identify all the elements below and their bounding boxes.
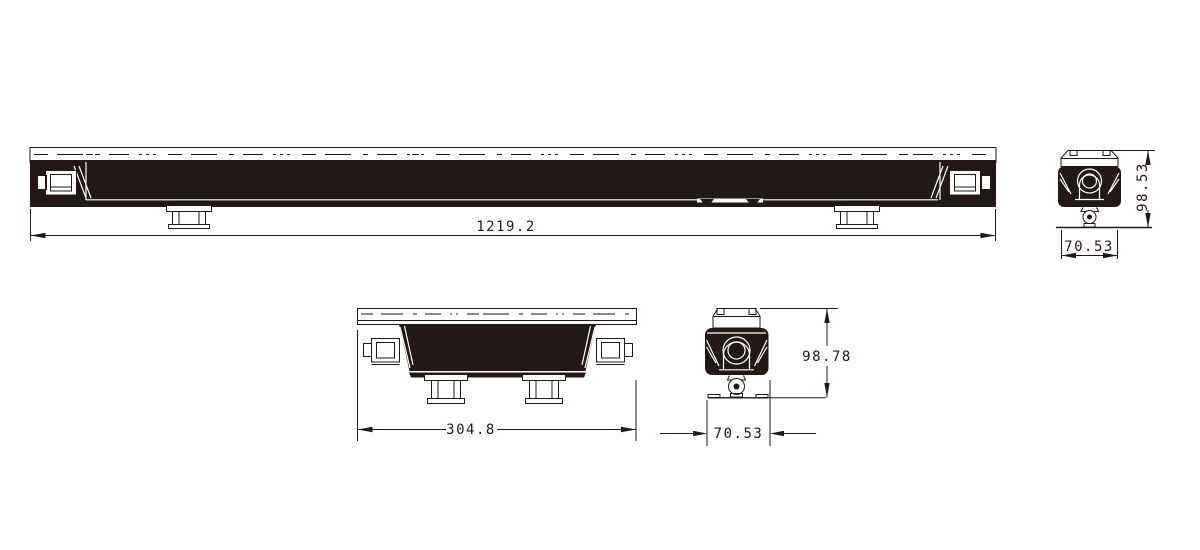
short-rail-cap-tabs (717, 309, 756, 315)
rail-cap-tabs (1070, 151, 1110, 156)
front-view-full-fixture (30, 148, 996, 229)
short-left-end-bracket (364, 339, 400, 363)
front-view-short-fixture (358, 309, 637, 404)
technical-drawing: 1219.2 98.53 70.53 (0, 0, 1200, 550)
dim-short-length-label: 304.8 (446, 422, 496, 438)
short-rail-outline (358, 309, 637, 325)
knob-base (1084, 224, 1095, 228)
dim-front-end-height-label: 98.53 (1135, 162, 1151, 212)
dim-short-end-height-label: 98.78 (802, 349, 852, 365)
short-hanging-bracket-right (523, 375, 566, 404)
short-end-housing-body (705, 328, 769, 375)
short-rail-cap-profile (713, 309, 760, 329)
mounting-knob-center (1087, 215, 1092, 220)
dim-front-end-width-label: 70.53 (1064, 239, 1114, 255)
dim-front-length-label: 1219.2 (476, 219, 536, 235)
short-mounting-knob-center (734, 384, 740, 390)
hanging-bracket-right (835, 206, 880, 229)
short-hanging-bracket-left (425, 375, 468, 404)
housing-body (30, 161, 996, 201)
dimension-short-end-height: 98.78 (760, 309, 852, 398)
dimension-drawing-canvas: 1219.2 98.53 70.53 (0, 0, 1200, 550)
dim-short-end-width-label: 70.53 (714, 426, 764, 442)
short-right-end-bracket (597, 339, 633, 363)
hanging-bracket-left (167, 206, 212, 229)
dimension-front-end-width: 70.53 (1062, 230, 1118, 259)
short-housing-body (399, 325, 596, 372)
